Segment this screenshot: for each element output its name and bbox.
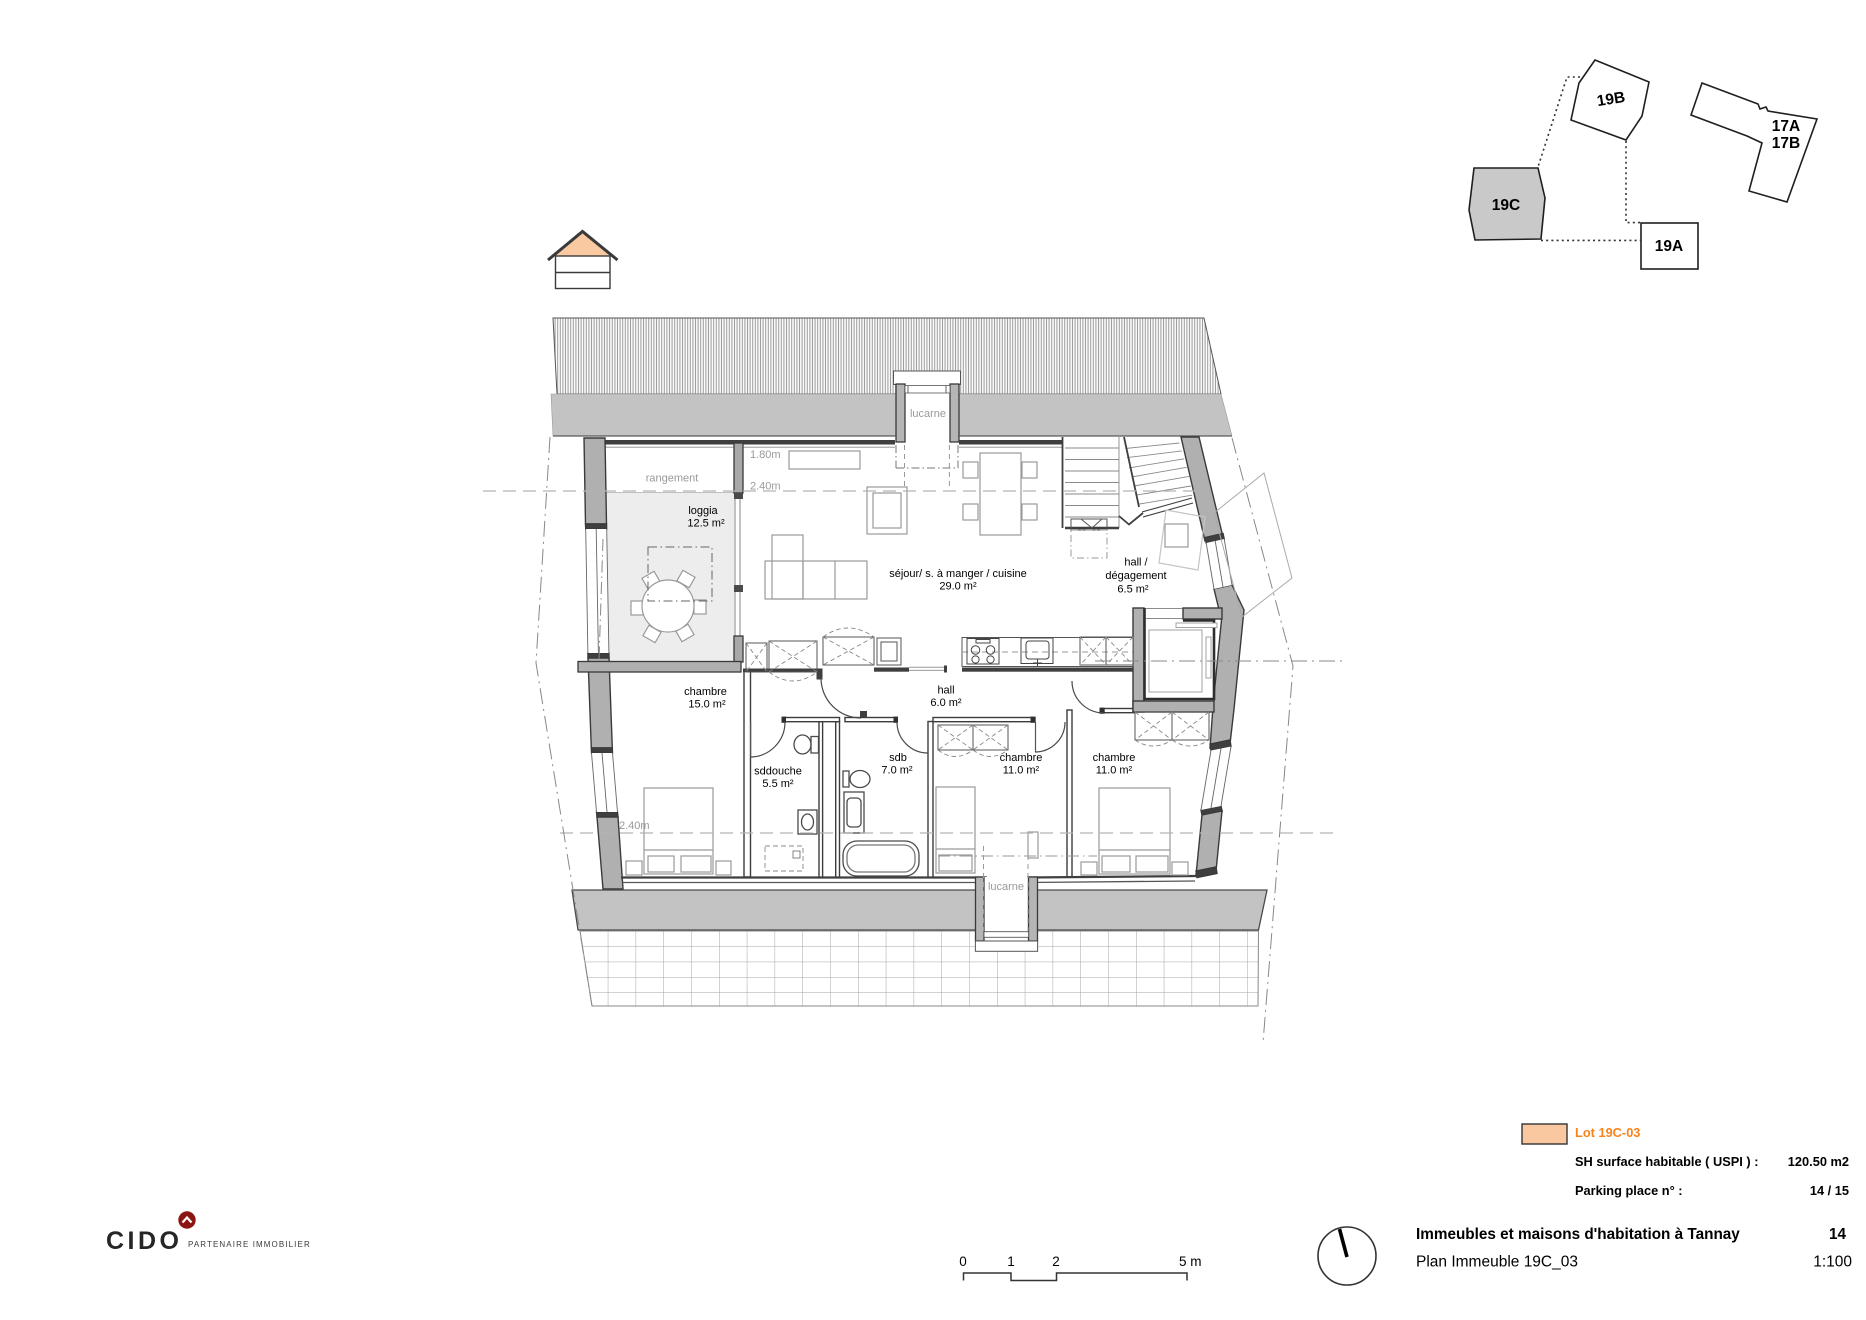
- svg-text:séjour/ s. à manger / cuisine: séjour/ s. à manger / cuisine: [889, 568, 1027, 580]
- svg-text:chambre: chambre: [1000, 752, 1043, 764]
- svg-text:SH surface habitable ( USPI ): SH surface habitable ( USPI ) :: [1575, 1154, 1758, 1169]
- svg-text:lucarne: lucarne: [910, 408, 946, 420]
- svg-text:120.50 m2: 120.50 m2: [1788, 1154, 1849, 1169]
- svg-text:7.0 m²: 7.0 m²: [881, 765, 913, 777]
- svg-text:PARTENAIRE IMMOBILIER: PARTENAIRE IMMOBILIER: [188, 1240, 311, 1249]
- svg-text:1: 1: [1007, 1254, 1015, 1269]
- svg-text:CIDO: CIDO: [106, 1227, 183, 1255]
- svg-text:19A: 19A: [1655, 238, 1683, 255]
- svg-text:lucarne: lucarne: [988, 881, 1024, 893]
- svg-text:6.5 m²: 6.5 m²: [1117, 584, 1149, 596]
- svg-text:12.5 m²: 12.5 m²: [687, 518, 725, 530]
- svg-text:2.40m: 2.40m: [750, 481, 781, 493]
- svg-text:loggia: loggia: [688, 505, 718, 517]
- svg-text:11.0 m²: 11.0 m²: [1003, 765, 1040, 777]
- svg-text:Parking place n° :: Parking place n° :: [1575, 1183, 1683, 1198]
- svg-text:17A: 17A: [1772, 118, 1800, 135]
- svg-text:14: 14: [1829, 1226, 1847, 1243]
- svg-text:15.0 m²: 15.0 m²: [688, 699, 726, 711]
- svg-text:2.40m: 2.40m: [619, 820, 650, 832]
- svg-text:6.0 m²: 6.0 m²: [930, 697, 962, 709]
- svg-text:0: 0: [959, 1254, 967, 1269]
- svg-text:1:100: 1:100: [1813, 1254, 1852, 1271]
- svg-text:5.5 m²: 5.5 m²: [762, 778, 794, 790]
- svg-text:17B: 17B: [1772, 135, 1800, 152]
- svg-text:sdb: sdb: [889, 752, 907, 764]
- svg-text:hall /: hall /: [1124, 557, 1148, 569]
- svg-text:11.0 m²: 11.0 m²: [1096, 765, 1133, 777]
- svg-text:chambre: chambre: [1093, 752, 1136, 764]
- svg-text:dégagement: dégagement: [1105, 570, 1166, 582]
- svg-text:Lot 19C-03: Lot 19C-03: [1575, 1125, 1640, 1140]
- svg-text:29.0 m²: 29.0 m²: [939, 581, 977, 593]
- svg-text:Immeubles et maisons d'habitat: Immeubles et maisons d'habitation à Tann…: [1416, 1226, 1740, 1243]
- svg-text:Plan Immeuble 19C_03: Plan Immeuble 19C_03: [1416, 1254, 1578, 1271]
- svg-text:chambre: chambre: [684, 686, 727, 698]
- svg-text:14 / 15: 14 / 15: [1810, 1183, 1849, 1198]
- svg-text:sddouche: sddouche: [754, 766, 802, 778]
- svg-text:1.80m: 1.80m: [750, 449, 781, 461]
- svg-text:19C: 19C: [1492, 197, 1520, 214]
- svg-text:hall: hall: [937, 685, 954, 697]
- svg-text:5 m: 5 m: [1179, 1254, 1202, 1269]
- svg-text:2: 2: [1052, 1254, 1060, 1269]
- svg-text:rangement: rangement: [646, 473, 699, 485]
